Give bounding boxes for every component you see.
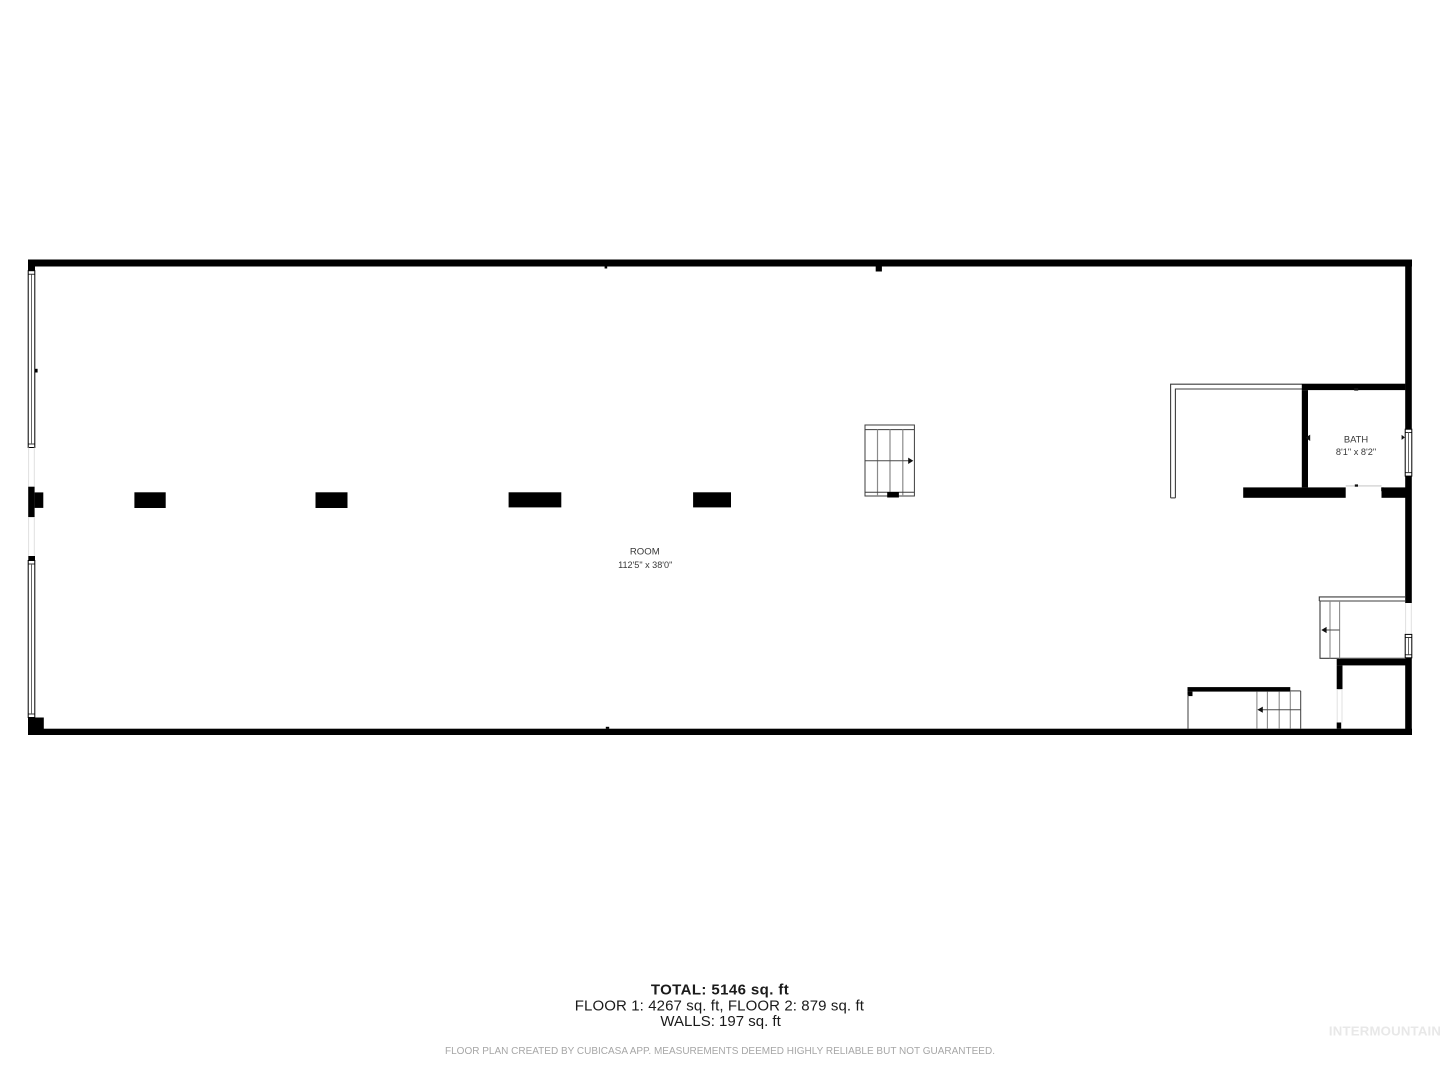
svg-text:112'5" x 38'0": 112'5" x 38'0" [618,560,672,570]
svg-text:WALLS: 197 sq. ft: WALLS: 197 sq. ft [660,1013,781,1030]
svg-text:BATH: BATH [1344,434,1368,445]
svg-text:8'1" x 8'2": 8'1" x 8'2" [1336,447,1376,457]
svg-text:INTERMOUNTAINT: INTERMOUNTAINT [1329,1024,1440,1039]
svg-text:TOTAL: 5146 sq. ft: TOTAL: 5146 sq. ft [651,981,789,998]
svg-text:ROOM: ROOM [630,547,660,558]
svg-text:FLOOR PLAN CREATED BY CUBICASA: FLOOR PLAN CREATED BY CUBICASA APP. MEAS… [445,1046,995,1057]
